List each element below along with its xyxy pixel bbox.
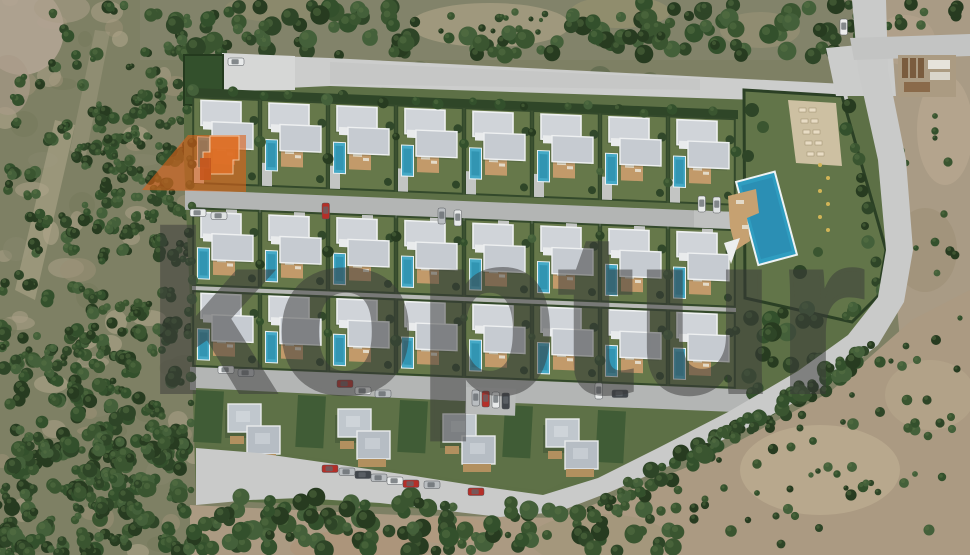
svg-text:koptur: koptur bbox=[146, 187, 866, 441]
